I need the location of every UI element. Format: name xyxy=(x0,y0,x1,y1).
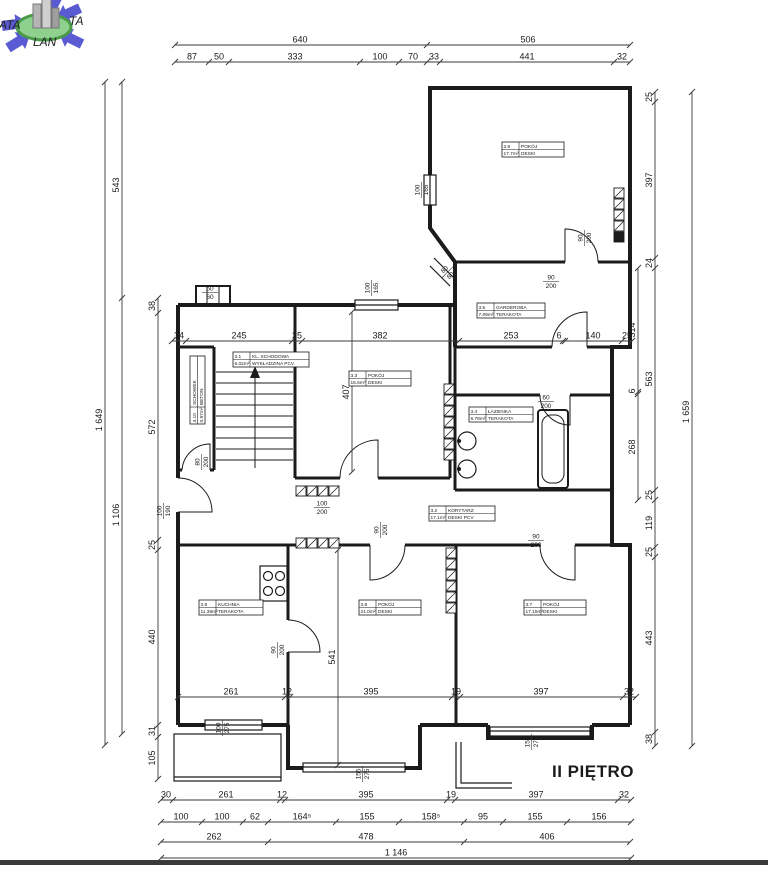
opening-height: 275 xyxy=(533,736,540,747)
dimension-chain: 640506 xyxy=(172,35,633,49)
dimension-chain: 261123951939732 xyxy=(175,687,639,701)
room-name: POKÓJ xyxy=(368,372,385,379)
opening-size-label: 5060 xyxy=(202,286,218,302)
opening-size-label: 80200 xyxy=(195,454,211,470)
door-arc xyxy=(540,545,575,580)
dimension-label: 25 xyxy=(644,490,654,500)
room-label: 3.911.36m²KUCHNIATERAKOTA xyxy=(199,600,263,615)
vent-shaft xyxy=(296,538,339,548)
room-number: 3.2 xyxy=(431,508,438,514)
door-arc xyxy=(288,620,320,652)
room-name: KUCHNIA xyxy=(218,602,240,608)
dimension-chain: 3424525382253614025 xyxy=(169,331,635,345)
dimension-label: 87 xyxy=(187,52,197,62)
dimension-label: 268 xyxy=(627,439,637,454)
dimension-label: 25 xyxy=(644,547,654,557)
door-swings xyxy=(178,229,598,652)
dimension-label: 441 xyxy=(519,52,534,62)
opening-size-label: 90200 xyxy=(271,642,287,658)
door-arc xyxy=(552,312,587,347)
opening-height: 200 xyxy=(382,524,389,535)
dimension-label: 382 xyxy=(372,331,387,341)
dimension-chain: 1 649 xyxy=(94,79,108,748)
room-floor-type: DESKI xyxy=(543,609,557,615)
opening-width: 100 xyxy=(157,505,164,516)
opening-width: 50 xyxy=(206,286,214,293)
dimension-chain: 2539724563251192544338 xyxy=(644,89,658,749)
logo-text-right: TA xyxy=(69,14,83,28)
dimension-label: 33 xyxy=(429,52,439,62)
vent-shaft xyxy=(614,188,624,242)
dimension-label: 314 xyxy=(627,322,637,337)
room-area: 11.36m² xyxy=(201,609,219,615)
dimension-label: 38 xyxy=(147,301,157,311)
dimension-label: 541 xyxy=(327,649,337,664)
room-area: 17.15m² xyxy=(526,609,544,615)
room-floor-type: TERAKOTA xyxy=(496,312,522,318)
room-number: 3.10 xyxy=(192,413,198,423)
room-area: 15.5m² xyxy=(351,380,366,386)
dimension-label: 155 xyxy=(527,812,542,822)
dimension-label: 19 xyxy=(446,790,456,800)
dimension-label: 12 xyxy=(277,790,287,800)
dimension-label: 155 xyxy=(359,812,374,822)
room-floor-type: WYKŁADZINA PCV xyxy=(252,361,295,367)
dimension-label: 32 xyxy=(617,52,627,62)
dimension-label: 100 xyxy=(214,812,229,822)
room-number: 3.1 xyxy=(235,354,242,360)
dimension-label: 443 xyxy=(644,630,654,645)
opening-height: 200 xyxy=(317,509,328,516)
dimension-label: 19 xyxy=(451,687,461,697)
room-area: 7.09m² xyxy=(479,312,494,318)
dimension-chain: 1 146 xyxy=(158,848,634,862)
dimension-label: 105 xyxy=(147,750,157,765)
dimension-label: 34 xyxy=(174,331,184,341)
dimension-label: 158⁵ xyxy=(422,812,441,822)
opening-size-label: 90200 xyxy=(543,275,559,291)
dimension-label: 572 xyxy=(147,419,157,434)
floor-plan-canvas: ATA TA LAN xyxy=(0,0,768,865)
opening-height: 200 xyxy=(541,403,552,410)
vent-shaft xyxy=(296,486,339,496)
room-number: 3.3 xyxy=(351,373,358,379)
room-area: 17.7m² xyxy=(504,151,519,157)
room-label: 3.46.78m²ŁAZIENKATERAKOTA xyxy=(469,407,533,422)
opening-width: 100 xyxy=(365,282,372,293)
dimension-chain: 262478406 xyxy=(158,832,633,846)
room-name: ŁAZIENKA xyxy=(488,409,512,415)
room-label: 3.16.02m²KL. SCHODOWAWYKŁADZINA PCV xyxy=(233,352,309,367)
logo-text-bottom: LAN xyxy=(33,35,57,49)
dimension-chain: 541 xyxy=(327,547,341,768)
opening-width: 100 xyxy=(415,184,422,195)
room-number: 3.9 xyxy=(201,602,208,608)
dimension-label: 6 xyxy=(556,331,561,341)
dimension-label: 38 xyxy=(644,734,654,744)
dimension-label: 164⁵ xyxy=(293,812,312,822)
dimension-label: 245 xyxy=(231,331,246,341)
opening-width: 90 xyxy=(578,234,585,242)
dimension-label: 406 xyxy=(539,832,554,842)
opening-width: 155 xyxy=(356,768,363,779)
dimension-label: 395 xyxy=(363,687,378,697)
vent-shaft-cell xyxy=(614,232,624,242)
dimension-chain: 30261123951939732 xyxy=(158,790,634,804)
dimension-label: 6 xyxy=(627,388,637,393)
dimension-label: 32 xyxy=(624,687,634,697)
dimension-label: 25 xyxy=(147,540,157,550)
door-arc xyxy=(370,545,405,580)
opening-width: 100 xyxy=(216,722,223,733)
dimension-label: 543 xyxy=(111,177,121,192)
staircase xyxy=(216,366,293,468)
opening-height: 200 xyxy=(546,283,557,290)
windows xyxy=(205,175,590,772)
opening-height: 275 xyxy=(364,768,371,779)
opening-height: 200 xyxy=(279,644,286,655)
opening-height: 190 xyxy=(165,505,172,516)
room-number: 3.8 xyxy=(361,602,368,608)
dimension-label: 25 xyxy=(644,92,654,102)
room-number: 3.4 xyxy=(471,409,478,415)
dimension-chain: 8750333100703344132 xyxy=(172,52,633,66)
opening-width: 90 xyxy=(271,646,278,654)
opening-width: 60 xyxy=(542,395,550,402)
opening-height: 60 xyxy=(206,294,214,301)
room-number: 3.6 xyxy=(504,144,511,150)
dimension-label: 31 xyxy=(147,726,157,736)
room-floor-type: DESKI xyxy=(521,151,535,157)
opening-width: 100 xyxy=(317,501,328,508)
room-number: 3.5 xyxy=(479,305,486,311)
vent-shaft xyxy=(444,384,454,460)
room-label: 3.57.09m²GARDEROBATERAKOTA xyxy=(477,303,545,318)
floor-plan-drawing: ATA TA LAN xyxy=(0,0,768,865)
room-name: KL. SCHODOWA xyxy=(252,354,290,360)
dimension-label: 395 xyxy=(358,790,373,800)
exterior-walls xyxy=(178,88,630,768)
dimension-label: 563 xyxy=(644,371,654,386)
dimension-label: 640 xyxy=(292,35,307,45)
dimension-label: 25 xyxy=(292,331,302,341)
dimension-chain: 1 659 xyxy=(681,89,695,749)
wall-bay xyxy=(288,725,420,768)
opening-width: 90 xyxy=(374,526,381,534)
opening-size-label: 90200 xyxy=(528,534,544,550)
opening-height: 200 xyxy=(531,542,542,549)
room-name: GARDEROBA xyxy=(496,305,527,311)
opening-width: 80 xyxy=(195,458,202,466)
dimension-label: 397 xyxy=(528,790,543,800)
dimension-label: 95 xyxy=(478,812,488,822)
room-label: 3.217.1m²KORYTARZDESKI PCV xyxy=(429,506,495,521)
dimension-label: 50 xyxy=(214,52,224,62)
room-area: 0.97m² xyxy=(199,407,205,422)
watermark-logo: ATA TA LAN xyxy=(0,0,86,56)
dimension-label: 506 xyxy=(520,35,535,45)
dimension-label: 100 xyxy=(372,52,387,62)
balcony-outline xyxy=(174,258,512,788)
room-area: 6.02m² xyxy=(235,361,250,367)
dimension-label: 1 106 xyxy=(111,504,121,527)
floor-title: II PIĘTRO xyxy=(538,762,648,782)
dimension-label: 12 xyxy=(282,687,292,697)
dimension-label: 140 xyxy=(585,331,600,341)
page-edge-bar xyxy=(0,860,768,865)
page: { "logo": { "text_left": "ATA", "text_ri… xyxy=(0,0,768,865)
dimension-label: 440 xyxy=(147,629,157,644)
room-floor-type: DESKI xyxy=(368,380,382,386)
generated-annotations: 6405068750333100703344132342452538225361… xyxy=(94,35,695,862)
dimension-label: 407 xyxy=(341,384,351,399)
room-number: 3.7 xyxy=(526,602,533,608)
dimension-label: 397 xyxy=(644,172,654,187)
dimension-label: 261 xyxy=(218,790,233,800)
dimension-label: 119 xyxy=(644,516,654,530)
opening-width: 90 xyxy=(532,534,540,541)
room-label: 3.821.0m²POKÓJDESKI xyxy=(359,600,421,615)
room-label: 3.717.15m²POKÓJDESKI xyxy=(524,600,586,615)
dimension-label: 261 xyxy=(223,687,238,697)
dimension-label: 333 xyxy=(287,52,302,62)
room-label: 3.617.7m²POKÓJDESKI xyxy=(502,142,564,157)
room-label: 3.315.5m²POKÓJDESKI xyxy=(349,371,411,386)
room-name: POKÓJ xyxy=(378,601,395,608)
dimension-label: 100 xyxy=(173,812,188,822)
room-name: POKÓJ xyxy=(521,143,538,150)
opening-height: 200 xyxy=(586,232,593,243)
dimension-label: 32 xyxy=(619,790,629,800)
dimension-label: 262 xyxy=(206,832,221,842)
room-area: 6.78m² xyxy=(471,416,486,422)
room-floor-type: DESKI xyxy=(378,609,392,615)
opening-size-label: 100200 xyxy=(314,501,330,517)
opening-height: 165 xyxy=(423,184,430,195)
kitchen-stove xyxy=(260,566,287,601)
opening-width: 90 xyxy=(547,275,555,282)
door-arc xyxy=(565,229,598,262)
opening-size-label: 100165 xyxy=(365,280,381,296)
dimension-label: 478 xyxy=(358,832,373,842)
bathtub xyxy=(538,410,568,488)
room-name: SCHOWEK xyxy=(192,379,198,405)
room-floor-type: BETON xyxy=(199,388,205,405)
dimension-label: 156 xyxy=(591,812,606,822)
dimension-label: 1 659 xyxy=(681,401,691,424)
room-area: 17.1m² xyxy=(431,515,446,521)
room-floor-type: TERAKOTA xyxy=(218,609,244,615)
dimension-label: 1 146 xyxy=(385,848,408,858)
room-name: KORYTARZ xyxy=(448,508,474,514)
dimension-label: 70 xyxy=(408,52,418,62)
door-arc xyxy=(178,478,212,512)
dimension-label: 24 xyxy=(644,258,654,268)
room-floor-type: TERAKOTA xyxy=(488,416,514,422)
opening-height: 275 xyxy=(224,722,231,733)
opening-width: 155 xyxy=(525,736,532,747)
opening-height: 165 xyxy=(373,282,380,293)
door-arc xyxy=(340,440,378,478)
room-floor-type: DESKI PCV xyxy=(448,515,474,521)
dimension-label: 62 xyxy=(250,812,260,822)
dimension-label: 253 xyxy=(503,331,518,341)
opening-size-label: 100190 xyxy=(157,503,173,519)
room-label: 3.100.97m²SCHOWEKBETON xyxy=(190,356,205,424)
room-name: POKÓJ xyxy=(543,601,560,608)
dimension-chain: 10010062164⁵155158⁵95155156 xyxy=(158,812,634,826)
dimension-chain: 5431 106 xyxy=(111,79,125,737)
dimension-label: 1 649 xyxy=(94,409,104,432)
dimension-label: 30 xyxy=(161,790,171,800)
opening-height: 200 xyxy=(203,456,210,467)
room-area: 21.0m² xyxy=(361,609,376,615)
opening-size-label: 90200 xyxy=(374,522,390,538)
dimension-chain: 385722544031105 xyxy=(147,295,161,782)
bathroom-sinks xyxy=(458,432,477,478)
dimension-label: 397 xyxy=(533,687,548,697)
wall xyxy=(428,88,630,725)
logo-text-left: ATA xyxy=(0,18,21,32)
